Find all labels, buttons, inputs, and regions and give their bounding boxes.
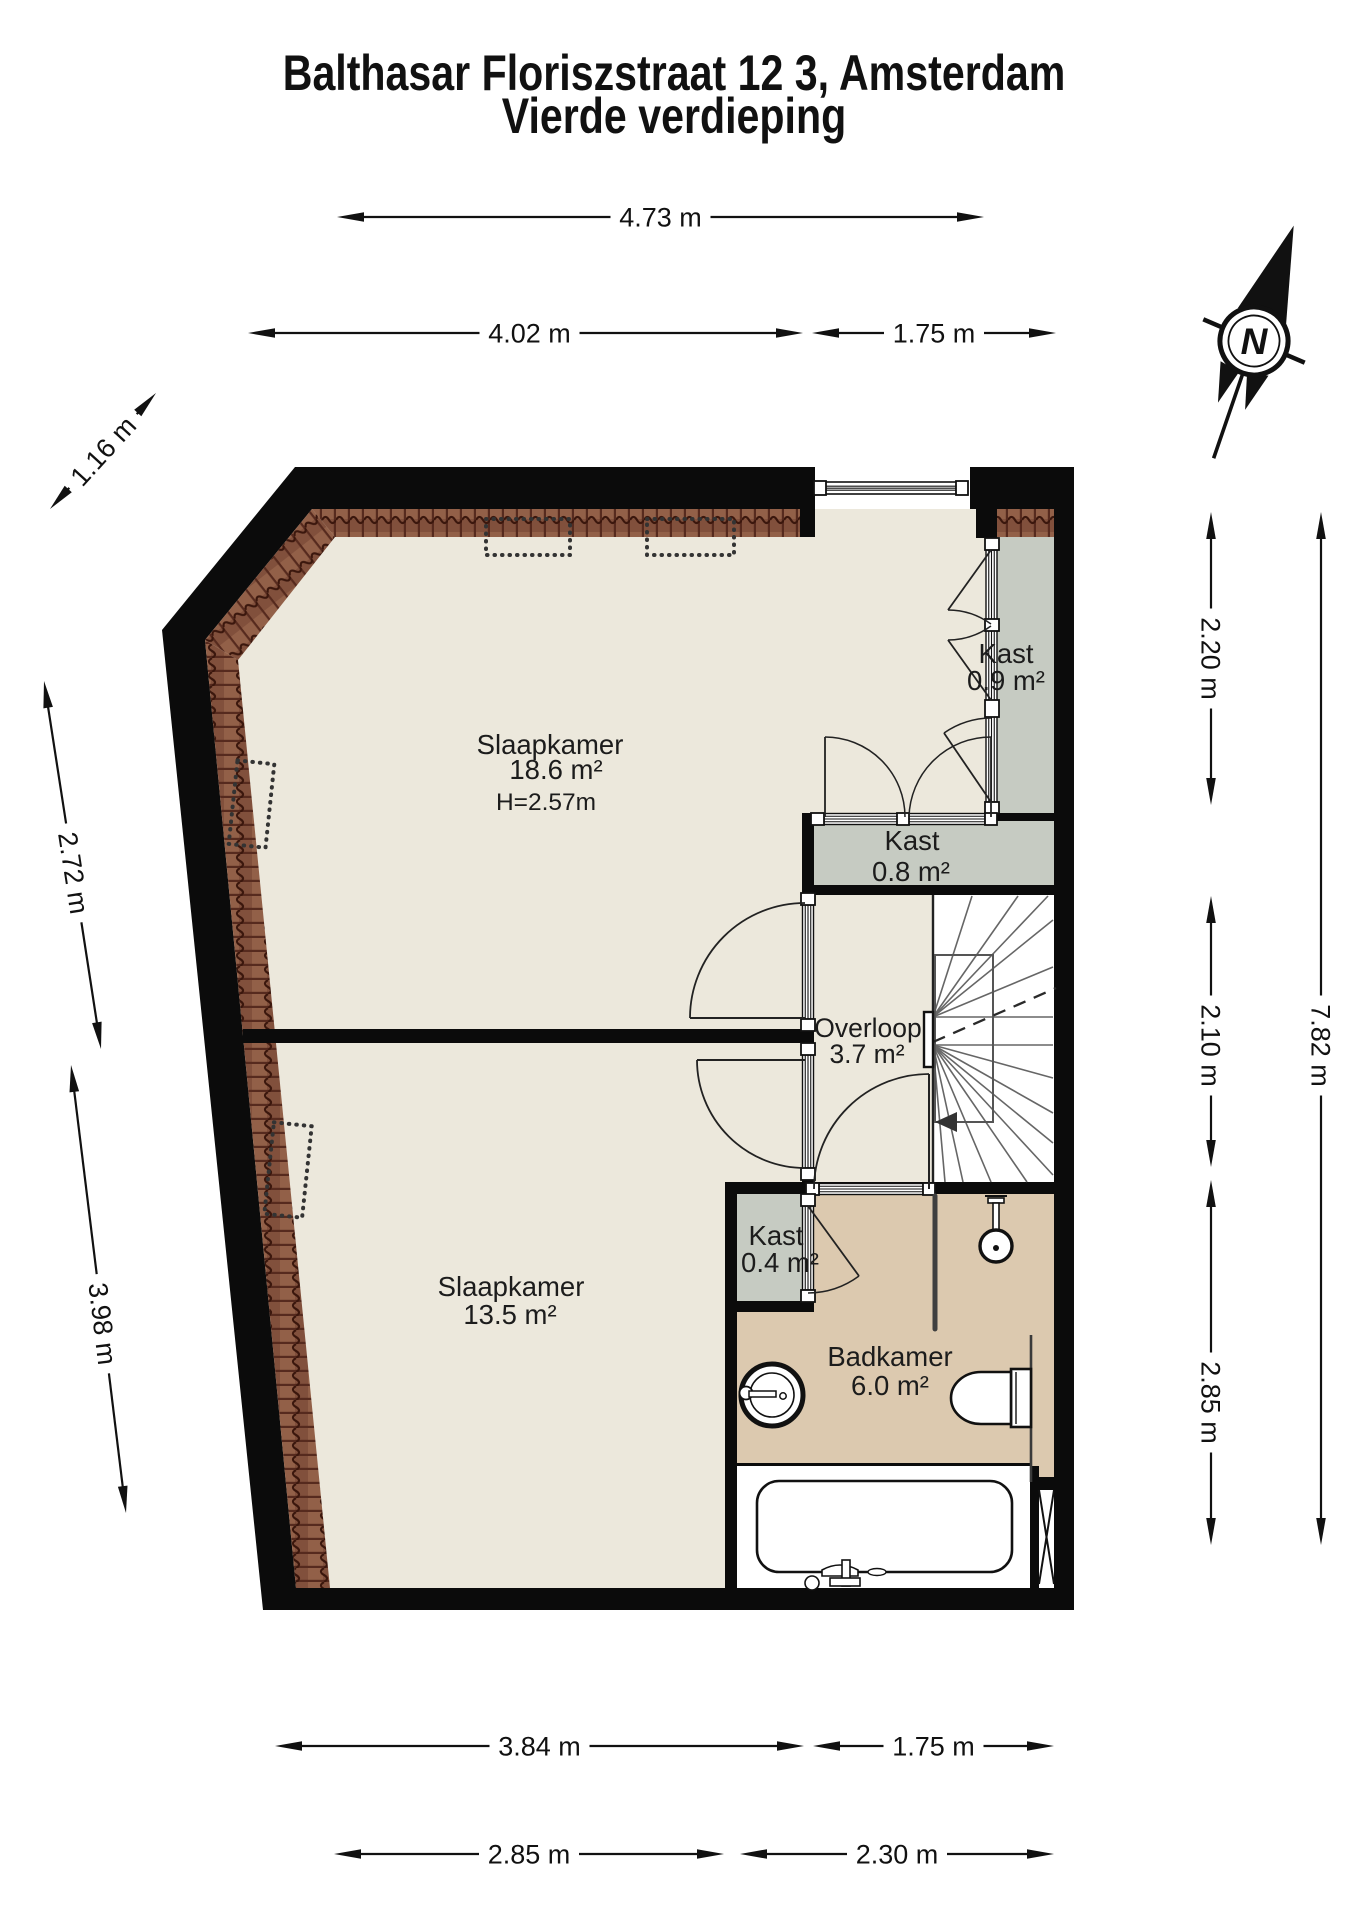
svg-text:4.02 m: 4.02 m (488, 319, 571, 349)
svg-text:2.85 m: 2.85 m (488, 1840, 571, 1870)
svg-text:Kast: Kast (884, 825, 939, 856)
svg-text:0.8 m²: 0.8 m² (872, 856, 950, 887)
svg-text:3.7 m²: 3.7 m² (829, 1039, 904, 1069)
svg-text:N: N (1241, 321, 1269, 362)
svg-text:2.10 m: 2.10 m (1196, 1004, 1226, 1087)
svg-text:7.82 m: 7.82 m (1306, 1004, 1336, 1087)
svg-text:1.75 m: 1.75 m (892, 1732, 975, 1762)
svg-text:18.6 m²: 18.6 m² (509, 754, 602, 785)
svg-text:3.84 m: 3.84 m (498, 1732, 581, 1762)
svg-text:13.5 m²: 13.5 m² (463, 1299, 556, 1330)
svg-text:Vierde verdieping: Vierde verdieping (502, 88, 846, 144)
svg-text:0.4 m²: 0.4 m² (741, 1247, 819, 1278)
svg-text:2.85 m: 2.85 m (1196, 1361, 1226, 1444)
svg-text:0.9 m²: 0.9 m² (967, 665, 1045, 696)
svg-text:H=2.57m: H=2.57m (496, 789, 596, 816)
svg-text:2.20 m: 2.20 m (1196, 617, 1226, 700)
svg-text:6.0 m²: 6.0 m² (851, 1370, 929, 1401)
svg-text:Slaapkamer: Slaapkamer (438, 1271, 585, 1302)
svg-text:4.73 m: 4.73 m (619, 203, 702, 233)
svg-text:1.75 m: 1.75 m (893, 319, 976, 349)
svg-text:2.30 m: 2.30 m (856, 1840, 939, 1870)
svg-text:Badkamer: Badkamer (827, 1341, 952, 1372)
